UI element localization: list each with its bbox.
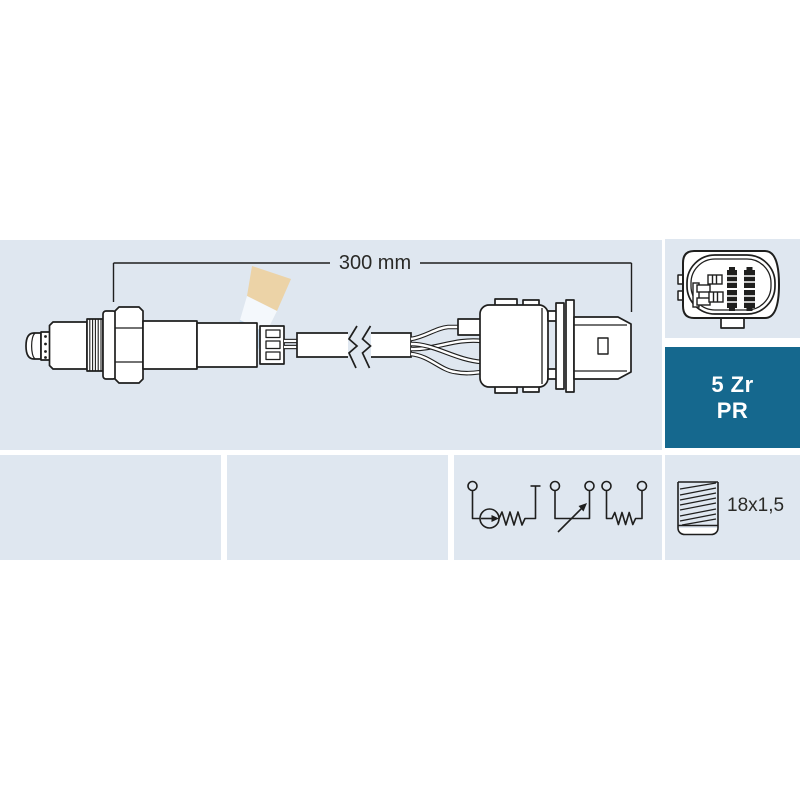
cable-sleeve bbox=[297, 326, 411, 368]
thread-size-label: 18x1,5 bbox=[727, 495, 784, 517]
connector-pinout-drawing bbox=[665, 239, 800, 338]
product-image: FAE bbox=[0, 0, 800, 800]
spec-badge: 5 Zr PR bbox=[665, 347, 800, 448]
circuit-diagram-drawing bbox=[454, 455, 662, 560]
sensor-wires-short bbox=[284, 341, 298, 347]
sensor-connector bbox=[458, 299, 631, 393]
circuit-panel bbox=[454, 455, 662, 560]
thread-spec-panel: 18x1,5 bbox=[665, 455, 800, 560]
dimension-label: 300 mm bbox=[330, 251, 420, 275]
sensor-body bbox=[26, 307, 284, 383]
sensor-drawing-panel: FAE bbox=[0, 240, 662, 450]
empty-spec-cell-1 bbox=[0, 455, 221, 560]
connector-pinout-panel bbox=[665, 239, 800, 338]
cable-break-icon bbox=[349, 326, 357, 368]
spec-badge-line1: 5 Zr bbox=[711, 372, 753, 398]
empty-spec-cell-2 bbox=[227, 455, 448, 560]
latch-window bbox=[598, 338, 608, 354]
spec-badge-line2: PR bbox=[717, 398, 749, 424]
